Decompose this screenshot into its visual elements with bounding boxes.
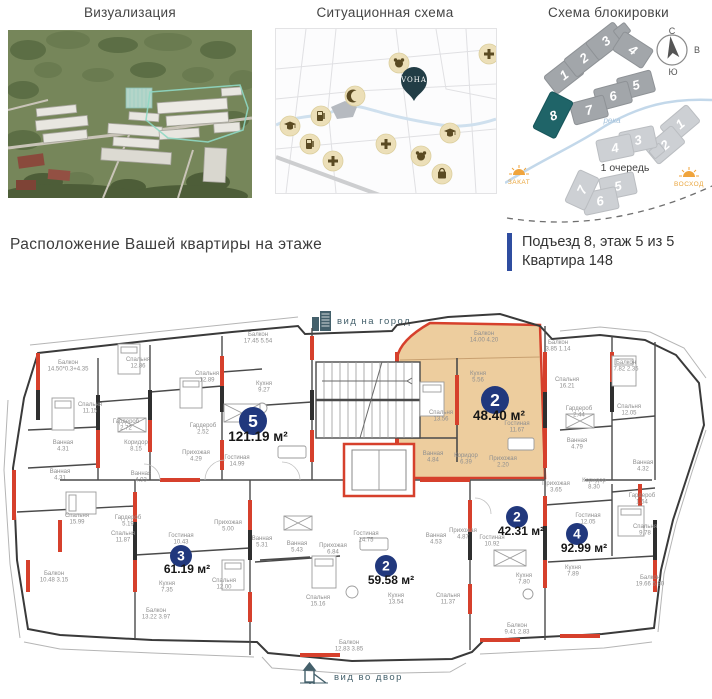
brochure-page: Визуализация xyxy=(0,0,712,699)
room-label: Спальня16.21 xyxy=(555,377,579,389)
svg-text:42.31 м²: 42.31 м² xyxy=(498,524,544,538)
room-label: Гостиная10.43 xyxy=(168,533,193,545)
unit-info: Подъезд 8, этаж 5 из 5 Квартира 148 xyxy=(507,233,674,271)
room-label: Коридор8.15 xyxy=(124,440,148,452)
room-label: Спальня11.87 xyxy=(111,531,135,543)
room-label: Балкон7.82 2.35 xyxy=(613,360,639,372)
view-yard-group: вид во двор xyxy=(300,663,403,684)
room-label: Ванная4.32 xyxy=(633,460,654,472)
mosque-icon xyxy=(345,86,365,106)
apartment-badge: 492.99 м² xyxy=(561,523,607,555)
block-7: 7 xyxy=(569,94,610,126)
room-label: Ванная4.31 xyxy=(53,440,74,452)
room-label: Спальня12.05 xyxy=(617,404,641,416)
apartment-number-text: Квартира 148 xyxy=(522,252,674,271)
hospital-icon xyxy=(376,134,396,154)
room-label: Прихожая6.84 xyxy=(319,543,347,555)
room-label: Коридор8.30 xyxy=(582,478,606,490)
visualization-panel: Визуализация xyxy=(8,0,252,200)
room-label: Кухня7.35 xyxy=(159,581,175,593)
svg-text:2: 2 xyxy=(382,559,390,574)
situation-panel: Ситуационная схема VOHA xyxy=(275,0,495,200)
situation-map: VOHA xyxy=(275,28,497,194)
room-label: Кухня13.54 xyxy=(388,593,404,605)
room-label: Гардероб2.52 xyxy=(190,423,217,435)
svg-text:92.99 м²: 92.99 м² xyxy=(561,541,607,555)
view-city-group: вид на город xyxy=(312,311,411,331)
room-label: Балкон14.50*0.3+4.35 xyxy=(48,360,90,372)
visualization-title: Визуализация xyxy=(8,5,252,20)
room-label: Прихожая4.87 xyxy=(449,528,477,540)
staircase xyxy=(316,362,420,438)
svg-text:61.19 м²: 61.19 м² xyxy=(164,562,210,576)
shop-icon xyxy=(432,164,452,184)
svg-text:121.19 м²: 121.19 м² xyxy=(228,429,288,444)
pharmacy-icon xyxy=(323,151,343,171)
room-label: Ванная5.31 xyxy=(252,536,273,548)
fuel-icon xyxy=(311,106,331,126)
svg-text:2: 2 xyxy=(490,390,500,410)
room-label: Кухня9.27 xyxy=(256,381,272,393)
room-label: Спальня11.37 xyxy=(436,593,460,605)
room-label: Прихожая3.65 xyxy=(542,481,570,493)
room-label: Ванная4.93 xyxy=(131,471,152,483)
room-label: Балкон12.83 3.85 xyxy=(335,640,364,652)
room-label: Спальня12.86 xyxy=(126,357,150,369)
playground-icon xyxy=(300,663,328,684)
room-label: Балкон10.48 3.15 xyxy=(40,571,69,583)
room-label: Гардероб1.54 xyxy=(629,493,656,505)
room-label: Балкон17.45 5.54 xyxy=(244,332,273,344)
room-label: Кухня7.80 xyxy=(516,573,532,585)
blocking-panel: Схема блокировки С В З Ю река 1 очередь … xyxy=(505,0,712,228)
kindergarten-icon xyxy=(411,146,431,166)
svg-text:59.58 м²: 59.58 м² xyxy=(368,573,414,587)
room-label: Балкон3.85 1.14 xyxy=(545,340,571,352)
room-label: Прихожая4.29 xyxy=(182,450,210,462)
svg-text:2: 2 xyxy=(513,510,521,525)
block-layer: 123456781234567 xyxy=(505,26,712,228)
entrance-floor-text: Подъезд 8, этаж 5 из 5 xyxy=(522,233,674,252)
complex-logo: VOHA xyxy=(400,76,427,84)
room-label: Ванная5.43 xyxy=(287,541,308,553)
situation-title: Ситуационная схема xyxy=(275,5,495,20)
block-4: 4 xyxy=(595,133,635,163)
svg-text:48.40 м²: 48.40 м² xyxy=(473,408,526,423)
room-label: Балкон9.41 2.83 xyxy=(504,623,530,635)
apartment-badge: 361.19 м² xyxy=(164,545,210,576)
room-label: Спальня12.89 xyxy=(195,371,219,383)
room-label: Гардероб5.19 xyxy=(115,515,142,527)
block-8: 8 xyxy=(532,90,574,139)
room-label: Кухня5.56 xyxy=(470,371,486,383)
room-label: Кухня7.89 xyxy=(565,565,581,577)
floor-heading: Расположение Вашей квартиры на этаже xyxy=(10,236,322,254)
room-label: Спальня15.16 xyxy=(306,595,330,607)
city-icon xyxy=(312,311,331,331)
fuel-icon xyxy=(300,134,320,154)
blocking-title: Схема блокировки xyxy=(505,5,712,20)
svg-text:4: 4 xyxy=(573,527,581,542)
school-icon xyxy=(440,123,460,143)
view-yard-label: вид во двор xyxy=(334,672,403,683)
floor-plan: вид на город xyxy=(0,299,712,699)
elevator xyxy=(344,444,414,496)
room-label: Ванная4.53 xyxy=(426,533,447,545)
school-icon xyxy=(280,116,300,136)
aerial-photo xyxy=(8,30,252,198)
room-label: Гостиная14.99 xyxy=(224,455,249,467)
svg-text:5: 5 xyxy=(248,411,258,431)
room-label: Балкон13.22 3.97 xyxy=(142,608,171,620)
room-label: Ванная4.79 xyxy=(567,438,588,450)
room-label: Прихожая5.00 xyxy=(214,520,242,532)
apartment-badge: 242.31 м² xyxy=(498,506,544,538)
pharmacy-icon xyxy=(479,44,497,64)
apartment-badge: 259.58 м² xyxy=(368,555,414,587)
room-label: Спальня15.99 xyxy=(65,513,89,525)
